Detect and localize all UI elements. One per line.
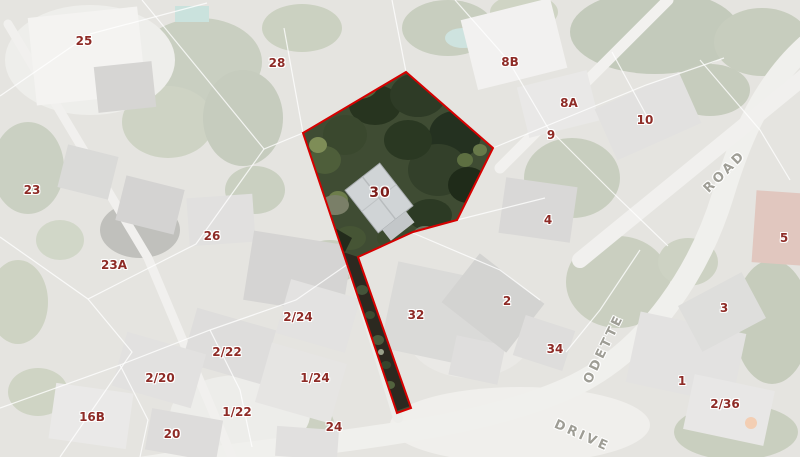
aerial-imagery-svg: [0, 0, 800, 457]
property-aerial-map[interactable]: 25288B8A91023452623A232/2432342/222/201/…: [0, 0, 800, 457]
